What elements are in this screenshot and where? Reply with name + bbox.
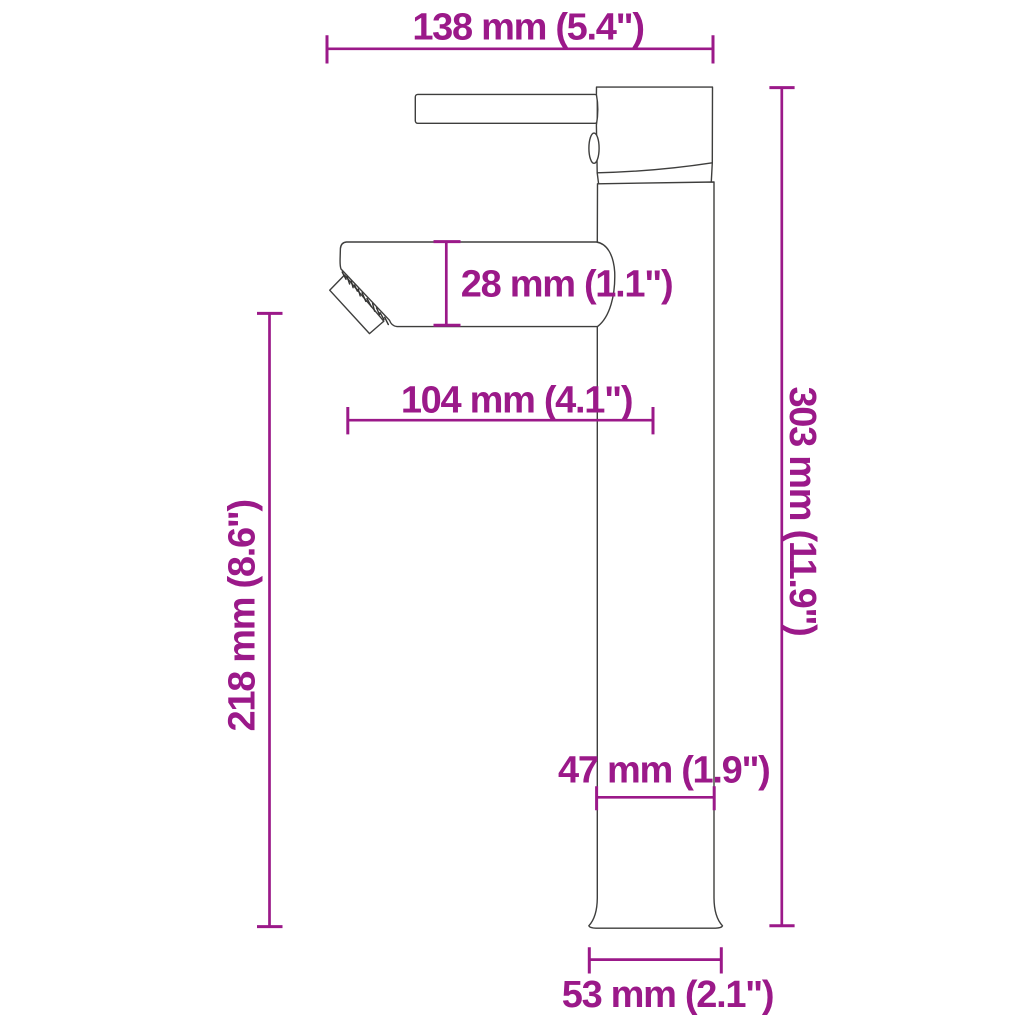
svg-text:53 mm (2.1"): 53 mm (2.1") [562,974,774,1016]
svg-text:28 mm (1.1"): 28 mm (1.1") [461,264,673,306]
svg-text:47 mm (1.9"): 47 mm (1.9") [558,750,770,792]
svg-text:104 mm (4.1"): 104 mm (4.1") [401,380,632,422]
svg-text:218 mm (8.6"): 218 mm (8.6") [222,500,264,731]
svg-text:303 mm (11.9"): 303 mm (11.9") [781,386,823,635]
svg-text:138 mm (5.4"): 138 mm (5.4") [412,7,643,49]
